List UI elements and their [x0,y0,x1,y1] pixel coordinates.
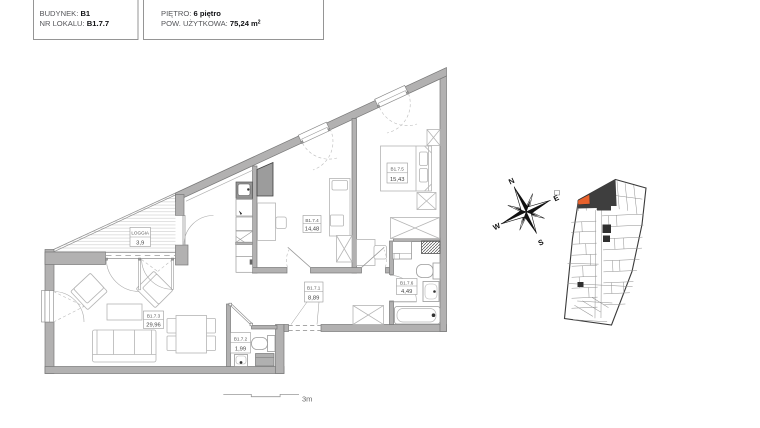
svg-text:B1.7.6: B1.7.6 [400,280,414,285]
svg-text:PIĘTRO: 6 piętro: PIĘTRO: 6 piętro [161,9,221,18]
svg-text:8,89: 8,89 [308,296,319,302]
svg-text:14,48: 14,48 [305,227,320,233]
svg-text:BUDYNEK: B1: BUDYNEK: B1 [40,9,91,18]
svg-text:29,96: 29,96 [146,323,161,329]
svg-text:POW. UŻYTKOWA: 75,24 m2: POW. UŻYTKOWA: 75,24 m2 [161,19,261,28]
svg-text:B1.7.1: B1.7.1 [307,286,321,291]
svg-text:B1.7.2: B1.7.2 [234,336,248,341]
svg-text:4,49: 4,49 [401,289,412,295]
svg-text:LOGGIA: LOGGIA [131,231,150,236]
svg-text:3,9: 3,9 [136,240,144,246]
svg-text:15,43: 15,43 [390,177,405,183]
svg-text:B1.7.4: B1.7.4 [305,218,319,223]
svg-text:NR LOKALU: B1.7.7: NR LOKALU: B1.7.7 [40,19,110,28]
svg-text:1,99: 1,99 [235,347,246,353]
svg-text:3m: 3m [302,395,312,404]
svg-text:B1.7.5: B1.7.5 [391,167,405,172]
svg-text:B1.7.3: B1.7.3 [147,313,161,318]
